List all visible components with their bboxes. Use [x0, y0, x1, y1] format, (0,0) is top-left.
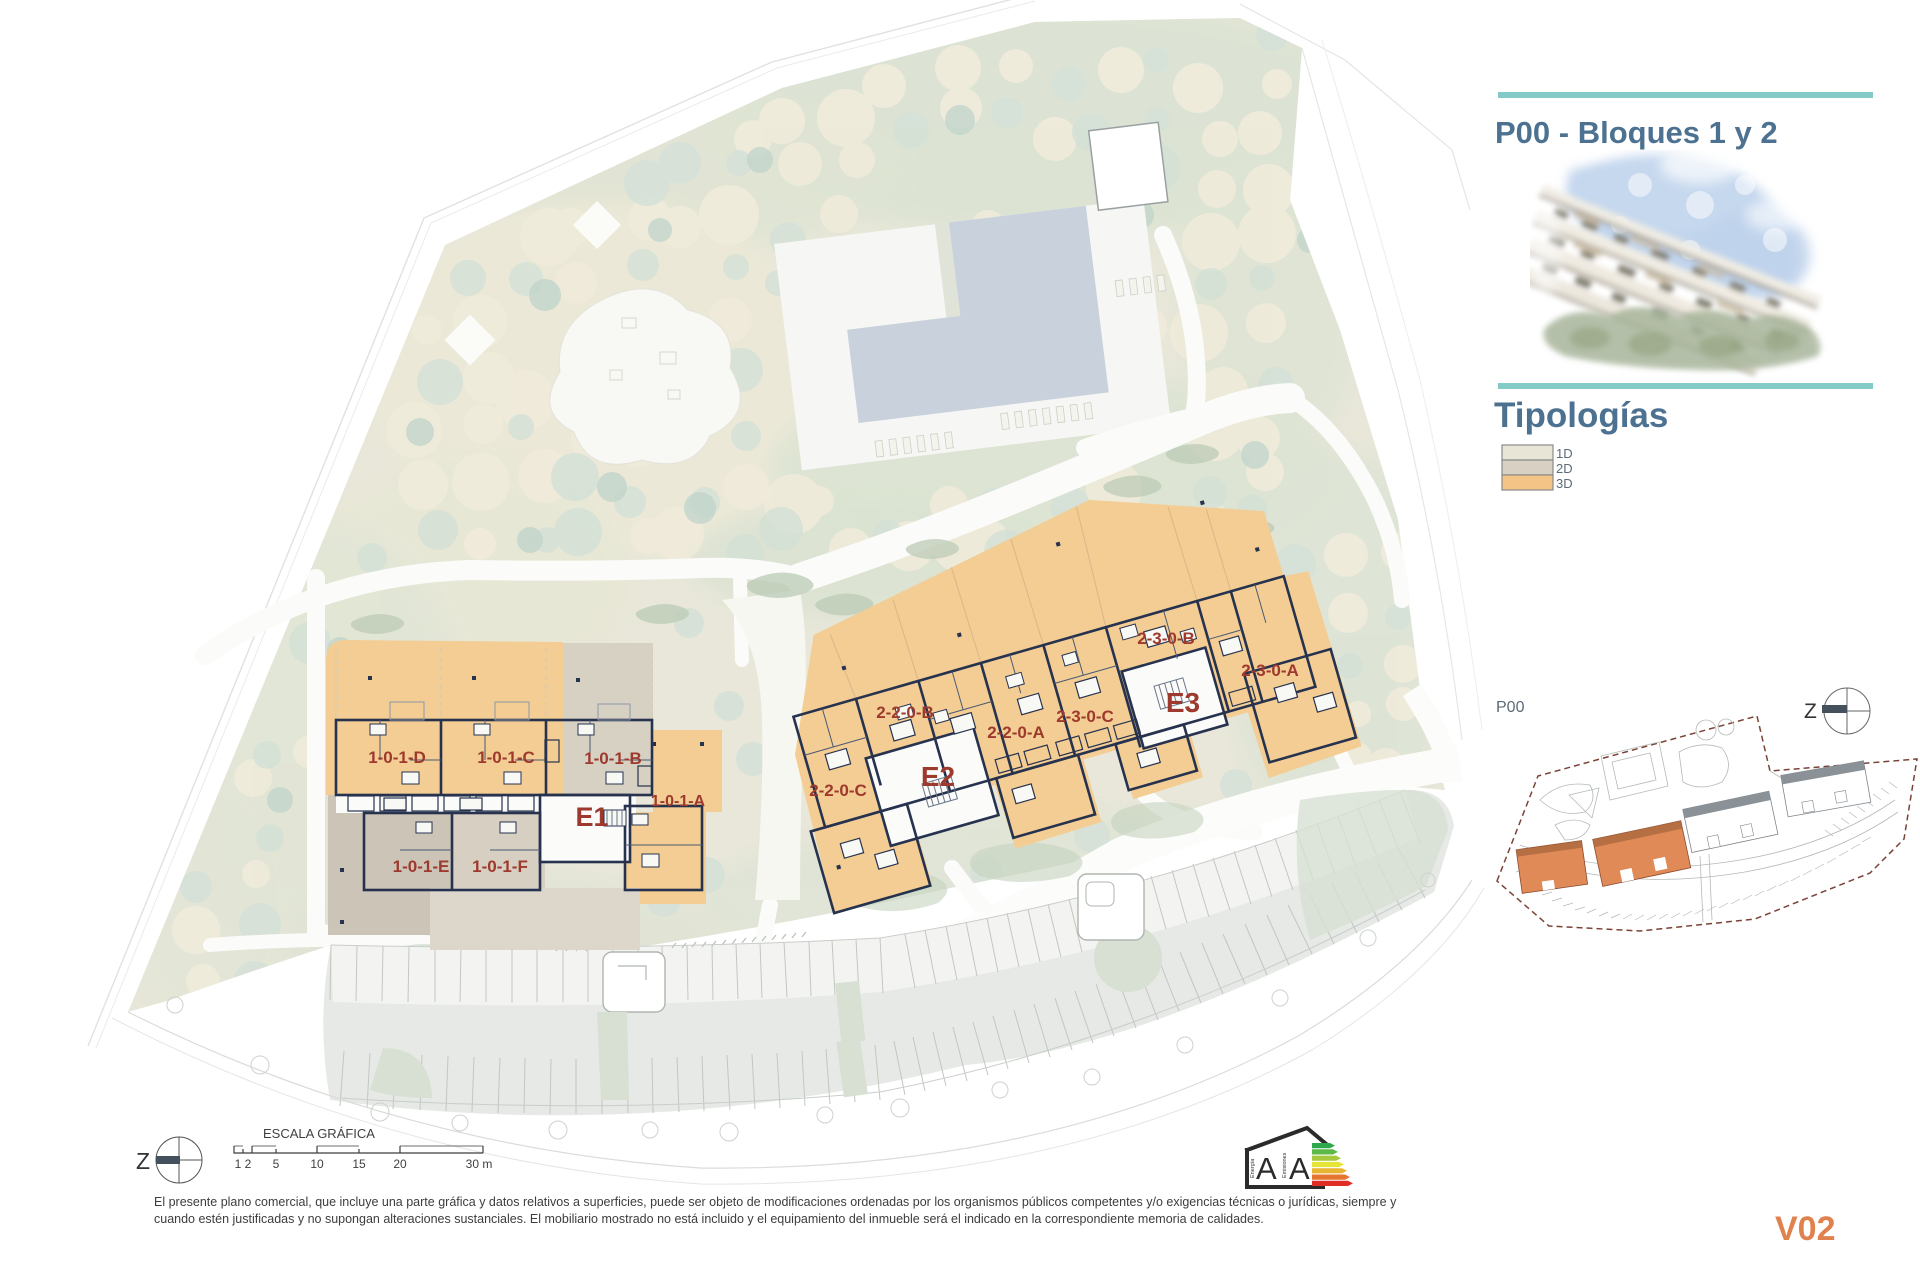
svg-text:Tipologías: Tipologías: [1494, 396, 1668, 435]
svg-text:A: A: [1289, 1151, 1310, 1186]
svg-text:20: 20: [393, 1157, 407, 1171]
svg-text:15: 15: [352, 1157, 366, 1171]
svg-text:5: 5: [273, 1157, 280, 1171]
svg-text:2-3-0-B: 2-3-0-B: [1137, 629, 1195, 648]
svg-text:E2: E2: [921, 761, 955, 792]
svg-text:1-0-1-D: 1-0-1-D: [368, 748, 426, 767]
svg-text:2-2-0-B: 2-2-0-B: [876, 703, 934, 722]
svg-text:cuando estén justificadas y no: cuando estén justificadas y no supongan …: [154, 1212, 1264, 1226]
svg-text:1 2: 1 2: [235, 1157, 252, 1171]
svg-text:3D: 3D: [1556, 476, 1573, 491]
svg-text:10: 10: [310, 1157, 324, 1171]
svg-text:A: A: [1256, 1151, 1277, 1186]
svg-text:Z: Z: [1804, 700, 1817, 723]
svg-text:Emisiones: Emisiones: [1282, 1152, 1288, 1178]
svg-text:2-2-0-A: 2-2-0-A: [987, 723, 1045, 742]
svg-text:2D: 2D: [1556, 461, 1573, 476]
svg-text:V02: V02: [1775, 1210, 1836, 1248]
svg-text:30 m: 30 m: [466, 1157, 493, 1171]
svg-text:El presente plano comercial, q: El presente plano comercial, que incluye…: [154, 1195, 1397, 1209]
svg-text:P00: P00: [1496, 699, 1525, 716]
svg-text:Energía: Energía: [1250, 1158, 1256, 1178]
svg-text:1-0-1-A: 1-0-1-A: [651, 793, 706, 810]
svg-text:2-2-0-C: 2-2-0-C: [809, 781, 867, 800]
svg-text:1D: 1D: [1556, 446, 1573, 461]
svg-text:2-3-0-C: 2-3-0-C: [1056, 707, 1114, 726]
svg-text:1-0-1-C: 1-0-1-C: [477, 748, 535, 767]
svg-text:1-0-1-E: 1-0-1-E: [393, 857, 450, 876]
svg-text:1-0-1-F: 1-0-1-F: [472, 857, 528, 876]
svg-text:ESCALA GRÁFICA: ESCALA GRÁFICA: [263, 1126, 375, 1141]
svg-text:P00 - Bloques 1 y 2: P00 - Bloques 1 y 2: [1495, 115, 1778, 150]
svg-text:Z: Z: [136, 1148, 150, 1174]
svg-text:2-3-0-A: 2-3-0-A: [1241, 661, 1299, 680]
svg-text:1-0-1-B: 1-0-1-B: [584, 749, 642, 768]
svg-text:E1: E1: [575, 802, 608, 832]
svg-text:E3: E3: [1166, 687, 1200, 718]
